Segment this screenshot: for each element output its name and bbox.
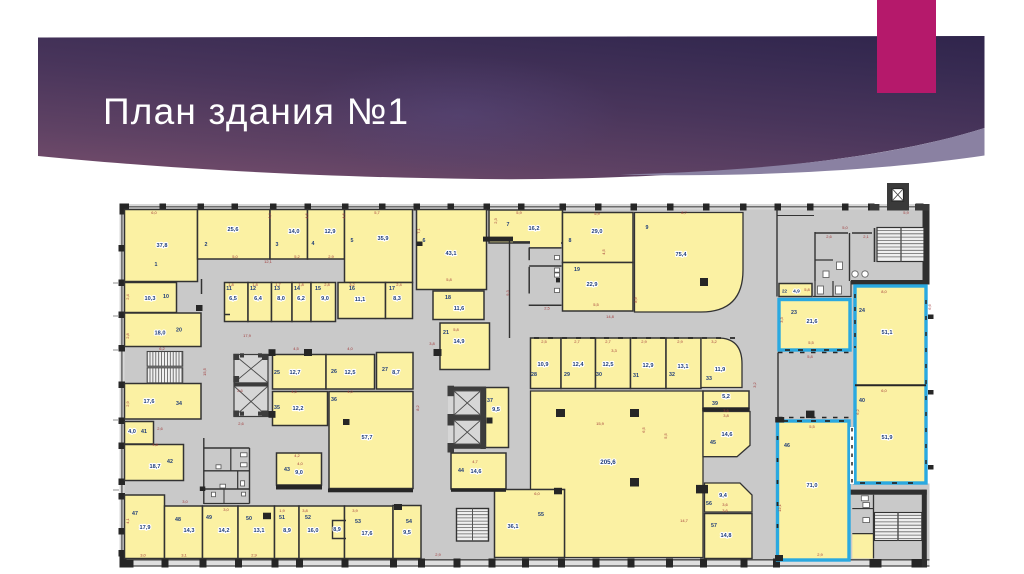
svg-text:30: 30: [596, 372, 602, 378]
svg-text:5,5: 5,5: [663, 432, 668, 438]
svg-text:28: 28: [531, 372, 537, 378]
svg-text:13,1: 13,1: [254, 528, 265, 534]
svg-text:3,2: 3,2: [711, 339, 717, 344]
svg-text:17,6: 17,6: [144, 399, 155, 405]
svg-text:12,2: 12,2: [293, 406, 304, 412]
svg-text:2,3: 2,3: [493, 217, 498, 223]
svg-text:4,5: 4,5: [291, 389, 297, 394]
svg-text:5,7: 5,7: [374, 210, 380, 215]
svg-text:6,2: 6,2: [297, 296, 305, 302]
svg-text:2,4: 2,4: [396, 282, 402, 287]
svg-text:2,1: 2,1: [863, 234, 869, 239]
svg-text:1: 1: [155, 262, 158, 268]
svg-text:6,2: 6,2: [159, 346, 165, 351]
svg-text:5,8: 5,8: [807, 354, 813, 359]
svg-text:5,8: 5,8: [446, 277, 452, 282]
svg-text:2,6: 2,6: [238, 421, 244, 426]
svg-text:5,5: 5,5: [593, 302, 599, 307]
svg-text:50: 50: [246, 516, 252, 522]
svg-text:3,6: 3,6: [722, 508, 728, 513]
svg-text:46: 46: [784, 443, 790, 449]
svg-text:2,6: 2,6: [826, 234, 832, 239]
svg-text:2,9: 2,9: [435, 552, 441, 557]
svg-text:5,5: 5,5: [809, 424, 815, 429]
svg-text:4,9: 4,9: [793, 289, 800, 295]
svg-text:3: 3: [276, 242, 279, 248]
svg-text:42: 42: [167, 459, 173, 465]
svg-text:7: 7: [507, 222, 510, 228]
svg-text:4,5: 4,5: [601, 248, 606, 254]
svg-text:17,9: 17,9: [243, 333, 252, 338]
svg-text:26: 26: [331, 369, 337, 375]
svg-text:55: 55: [538, 512, 544, 518]
svg-text:14,8: 14,8: [721, 533, 732, 539]
svg-text:34: 34: [176, 401, 182, 407]
svg-text:54: 54: [406, 519, 412, 525]
svg-text:15,9: 15,9: [596, 421, 605, 426]
svg-text:40: 40: [859, 398, 865, 404]
svg-text:57,7: 57,7: [362, 435, 373, 441]
svg-text:49: 49: [206, 515, 212, 521]
svg-text:3,0: 3,0: [223, 507, 229, 512]
svg-text:4,7: 4,7: [472, 459, 478, 464]
svg-text:12,9: 12,9: [325, 229, 336, 235]
svg-text:32: 32: [669, 372, 675, 378]
svg-text:10,9: 10,9: [538, 362, 549, 368]
svg-text:5,8: 5,8: [804, 287, 810, 292]
svg-text:16,2: 16,2: [529, 226, 540, 232]
svg-text:14,6: 14,6: [722, 432, 733, 438]
svg-text:8: 8: [569, 238, 572, 244]
svg-text:53: 53: [355, 519, 361, 525]
svg-text:56: 56: [706, 501, 712, 507]
svg-text:19: 19: [574, 267, 580, 273]
svg-text:2: 2: [205, 242, 208, 248]
svg-text:4,2: 4,2: [294, 453, 300, 458]
svg-text:5: 5: [351, 238, 354, 244]
svg-text:4,6: 4,6: [341, 212, 346, 218]
svg-text:24: 24: [859, 308, 865, 314]
svg-text:31: 31: [633, 373, 639, 379]
svg-text:План здания №1: План здания №1: [103, 91, 409, 132]
svg-text:71,0: 71,0: [807, 483, 818, 489]
svg-text:8,2: 8,2: [415, 404, 420, 410]
svg-text:33: 33: [706, 376, 712, 382]
svg-text:4,1: 4,1: [125, 517, 130, 523]
svg-text:9,0: 9,0: [321, 296, 329, 302]
svg-text:22,9: 22,9: [587, 282, 598, 288]
svg-text:8,3: 8,3: [393, 296, 401, 302]
svg-text:3,9: 3,9: [352, 508, 358, 513]
svg-text:29,0: 29,0: [592, 229, 603, 235]
svg-text:18,7: 18,7: [150, 464, 161, 470]
svg-text:4: 4: [312, 241, 315, 247]
svg-text:20: 20: [176, 328, 182, 334]
svg-text:4,0: 4,0: [347, 346, 353, 351]
svg-text:6,5: 6,5: [641, 426, 646, 432]
svg-text:16,0: 16,0: [308, 528, 319, 534]
svg-text:6: 6: [423, 238, 426, 244]
svg-text:18,0: 18,0: [155, 331, 166, 337]
svg-text:4,6: 4,6: [304, 212, 309, 218]
svg-text:5,8: 5,8: [453, 327, 459, 332]
svg-text:12,4: 12,4: [573, 362, 585, 368]
svg-text:2,9: 2,9: [817, 552, 823, 557]
svg-text:43,1: 43,1: [446, 251, 457, 257]
svg-text:14,6: 14,6: [471, 469, 482, 475]
svg-text:3,3: 3,3: [611, 348, 617, 353]
svg-text:5,2: 5,2: [294, 254, 300, 259]
svg-text:51,1: 51,1: [882, 330, 893, 336]
svg-text:14,8: 14,8: [606, 314, 615, 319]
svg-text:2,5: 2,5: [541, 339, 547, 344]
svg-text:4,0: 4,0: [347, 389, 353, 394]
svg-text:14,2: 14,2: [219, 528, 230, 534]
svg-text:5,5: 5,5: [808, 340, 814, 345]
svg-text:21,6: 21,6: [807, 319, 818, 325]
svg-text:2,6: 2,6: [237, 388, 243, 393]
svg-text:3,3: 3,3: [779, 316, 784, 322]
svg-text:12,9: 12,9: [643, 363, 654, 369]
svg-text:12,1: 12,1: [264, 259, 273, 264]
svg-text:8,7: 8,7: [392, 370, 400, 376]
svg-text:37,8: 37,8: [157, 243, 168, 249]
svg-text:11,9: 11,9: [715, 367, 726, 373]
svg-text:23: 23: [791, 310, 797, 316]
svg-text:2,4: 2,4: [125, 293, 130, 299]
svg-text:4,8: 4,8: [152, 442, 158, 447]
svg-text:9,5: 9,5: [403, 530, 411, 536]
svg-text:15: 15: [315, 286, 321, 292]
svg-text:1,8: 1,8: [252, 282, 258, 287]
svg-text:48: 48: [175, 517, 181, 523]
svg-text:2,8: 2,8: [324, 282, 330, 287]
svg-text:47: 47: [132, 511, 138, 517]
svg-text:9: 9: [646, 225, 649, 231]
svg-text:8,9: 8,9: [633, 296, 638, 302]
svg-text:2,5: 2,5: [544, 306, 550, 311]
svg-text:27: 27: [382, 367, 388, 373]
svg-text:3,8: 3,8: [302, 508, 308, 513]
svg-text:5,9: 5,9: [594, 211, 600, 216]
svg-text:21: 21: [443, 330, 449, 336]
svg-text:37: 37: [487, 398, 493, 404]
svg-text:9,0: 9,0: [295, 470, 303, 476]
svg-text:9,3: 9,3: [505, 289, 510, 295]
svg-text:7,1: 7,1: [416, 227, 421, 233]
svg-text:12,7: 12,7: [290, 370, 301, 376]
svg-text:43: 43: [284, 467, 290, 473]
svg-text:14,3: 14,3: [184, 528, 195, 534]
svg-text:18: 18: [445, 295, 451, 301]
svg-text:9,5: 9,5: [492, 407, 500, 413]
svg-text:57: 57: [711, 523, 717, 529]
svg-text:3,2: 3,2: [349, 282, 355, 287]
svg-text:17,9: 17,9: [140, 525, 151, 531]
svg-text:8,0: 8,0: [881, 289, 887, 294]
svg-text:36: 36: [331, 397, 337, 403]
svg-text:39: 39: [712, 401, 718, 407]
svg-text:14,7: 14,7: [680, 518, 689, 523]
svg-text:6,2: 6,2: [855, 408, 860, 414]
svg-text:36,1: 36,1: [508, 524, 519, 530]
svg-text:6,5: 6,5: [229, 296, 237, 302]
svg-text:2,7: 2,7: [605, 339, 611, 344]
svg-text:8,9: 8,9: [283, 528, 291, 534]
svg-text:4,0: 4,0: [128, 429, 136, 435]
svg-text:8,7: 8,7: [681, 210, 687, 215]
svg-text:12,1: 12,1: [777, 503, 782, 512]
svg-text:13,1: 13,1: [678, 364, 689, 370]
svg-text:3,8: 3,8: [429, 341, 435, 346]
svg-text:44: 44: [458, 468, 464, 474]
svg-text:52: 52: [305, 515, 311, 521]
svg-text:5,0: 5,0: [232, 254, 238, 259]
svg-text:6,0: 6,0: [881, 388, 887, 393]
svg-text:3,8: 3,8: [723, 413, 729, 418]
svg-text:25: 25: [274, 370, 280, 376]
svg-text:35: 35: [274, 405, 280, 411]
svg-text:12,5: 12,5: [603, 362, 614, 368]
svg-text:11,1: 11,1: [355, 297, 366, 303]
svg-text:75,4: 75,4: [676, 252, 688, 258]
svg-text:1,7: 1,7: [275, 282, 281, 287]
svg-text:2,9: 2,9: [641, 339, 647, 344]
svg-text:51,9: 51,9: [882, 435, 893, 441]
svg-text:5,9: 5,9: [516, 210, 522, 215]
svg-text:6,0: 6,0: [151, 210, 157, 215]
svg-text:2,8: 2,8: [125, 332, 130, 338]
svg-text:2,6: 2,6: [157, 426, 163, 431]
svg-text:4,5: 4,5: [293, 346, 299, 351]
svg-text:14,9: 14,9: [454, 339, 465, 345]
svg-text:6,4: 6,4: [254, 296, 263, 302]
svg-text:8,0: 8,0: [277, 296, 285, 302]
svg-text:1,8: 1,8: [228, 282, 234, 287]
svg-text:45: 45: [710, 440, 716, 446]
svg-text:3,0: 3,0: [182, 499, 188, 504]
svg-text:41: 41: [141, 429, 147, 435]
svg-text:1,9: 1,9: [279, 508, 285, 513]
svg-text:6,6: 6,6: [927, 303, 932, 309]
svg-text:3,1: 3,1: [181, 553, 187, 558]
svg-text:10: 10: [163, 294, 169, 300]
svg-text:1,8: 1,8: [298, 282, 304, 287]
svg-text:5,2: 5,2: [722, 394, 730, 400]
svg-text:10,3: 10,3: [145, 296, 156, 302]
svg-text:14,0: 14,0: [289, 229, 300, 235]
svg-text:205,6: 205,6: [600, 459, 616, 466]
svg-text:5,9: 5,9: [903, 210, 909, 215]
svg-text:35,9: 35,9: [378, 236, 389, 242]
svg-text:3,2: 3,2: [752, 381, 757, 387]
svg-text:5,0: 5,0: [842, 225, 848, 230]
svg-text:22: 22: [782, 289, 788, 294]
svg-text:25,6: 25,6: [228, 227, 239, 233]
svg-text:8,9: 8,9: [333, 527, 341, 533]
svg-text:2,9: 2,9: [328, 254, 334, 259]
svg-text:9,4: 9,4: [719, 493, 728, 499]
svg-text:3,6: 3,6: [722, 502, 728, 507]
svg-text:4,4: 4,4: [267, 212, 272, 218]
svg-text:15,5: 15,5: [202, 367, 207, 376]
svg-text:4,0: 4,0: [297, 461, 303, 466]
svg-text:2,9: 2,9: [677, 339, 683, 344]
svg-text:2,9: 2,9: [251, 553, 257, 558]
svg-text:11,6: 11,6: [454, 306, 465, 312]
svg-text:6,0: 6,0: [534, 491, 540, 496]
svg-text:29: 29: [564, 372, 570, 378]
svg-text:17: 17: [389, 286, 395, 292]
svg-text:2,7: 2,7: [574, 339, 580, 344]
svg-text:2,9: 2,9: [125, 400, 130, 406]
svg-text:51: 51: [279, 515, 285, 521]
svg-text:3,0: 3,0: [140, 553, 146, 558]
svg-text:17,6: 17,6: [362, 531, 373, 537]
svg-text:12,5: 12,5: [345, 370, 356, 376]
